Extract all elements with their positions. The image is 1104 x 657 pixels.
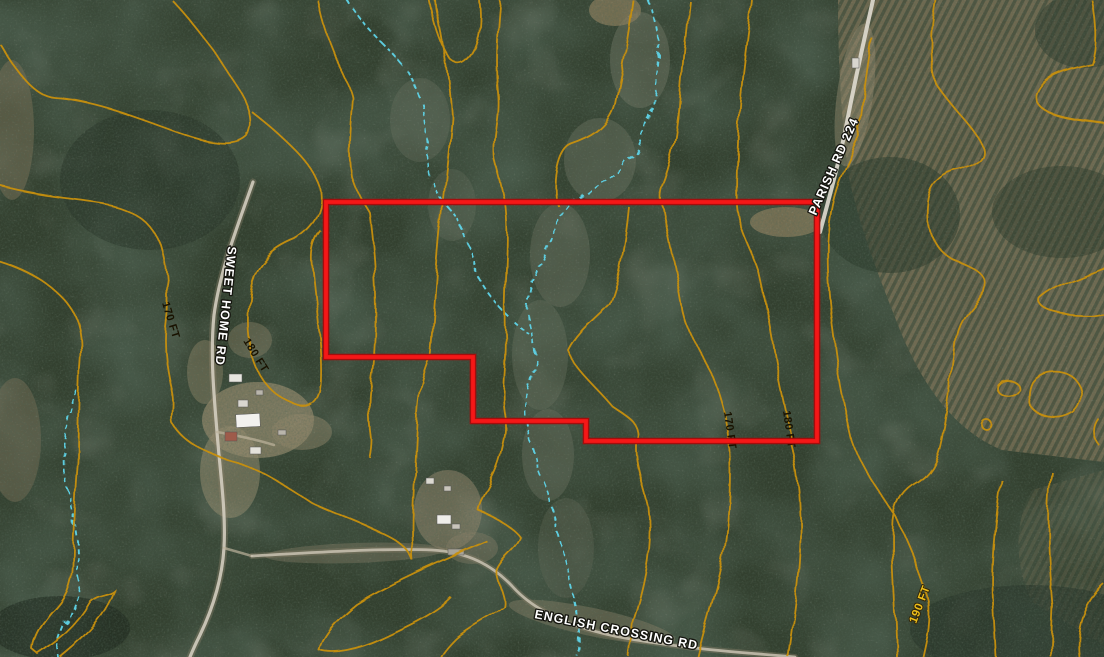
map-canvas: 170 FT 180 FT 170 FT 180 FT 190 FT SWEET… — [0, 0, 1104, 657]
map-viewport[interactable]: 170 FT 180 FT 170 FT 180 FT 190 FT SWEET… — [0, 0, 1104, 657]
